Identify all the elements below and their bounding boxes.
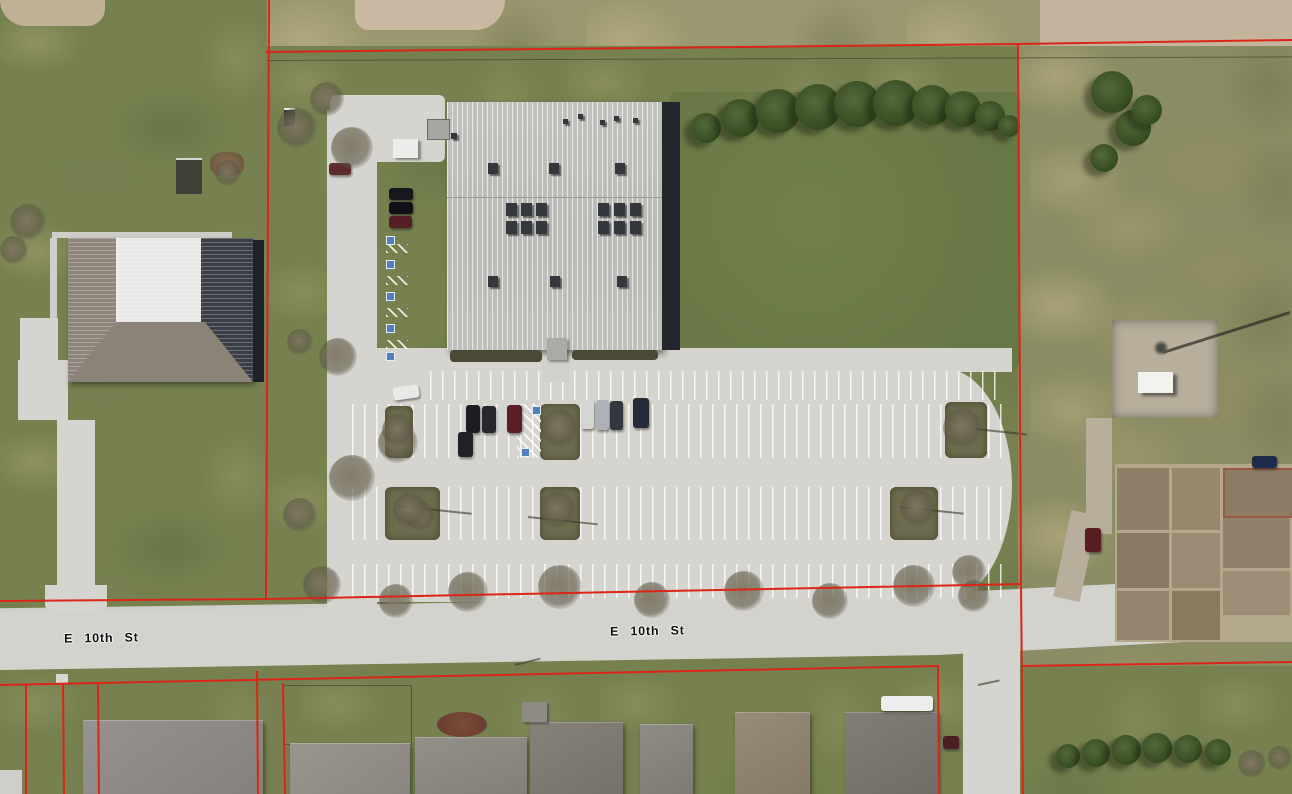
rooftop-unit (506, 203, 517, 216)
evergreen-tree (691, 113, 721, 143)
scrub-diagonal-right (1030, 140, 1292, 470)
rooftop-unit (488, 163, 498, 174)
car (581, 400, 594, 429)
camper-rv (881, 696, 933, 711)
rooftop-unit (550, 276, 560, 287)
left-building-walk (50, 238, 57, 324)
bare-tree (1268, 746, 1292, 770)
building-lawn (668, 92, 1020, 370)
house-roof (530, 722, 623, 794)
car (389, 188, 413, 200)
rooftop-unit (598, 203, 609, 216)
rooftop-unit (614, 221, 625, 234)
evergreen-tree (1132, 95, 1162, 125)
garden-plot (1117, 591, 1169, 640)
bare-tree (943, 408, 983, 448)
car (458, 432, 473, 457)
evergreen-tree (1142, 733, 1172, 763)
residential-driveway (963, 642, 1020, 794)
stall-row-b (352, 404, 1004, 458)
bare-tree (331, 127, 373, 169)
main-building-roof-seam (447, 197, 662, 198)
left-building-pad (20, 318, 58, 364)
accessible-parking-symbol (521, 448, 530, 457)
accessible-parking-symbol (532, 406, 541, 415)
backyard-fence (283, 685, 412, 745)
left-building-pad (18, 360, 68, 420)
house-roof (290, 743, 410, 794)
car (466, 405, 480, 433)
dumpster-enclosure (427, 119, 450, 140)
car (943, 736, 959, 749)
bare-tree (283, 498, 317, 532)
bare-tree (952, 555, 986, 589)
car (482, 406, 496, 433)
rooftop-unit (488, 276, 498, 287)
roof-vent (563, 119, 568, 124)
rooftop-unit (536, 203, 547, 216)
mulch-landscape-circle (437, 712, 487, 737)
evergreen-tree (1111, 735, 1141, 765)
accessible-parking-symbol (386, 260, 395, 269)
accessible-parking-symbol (386, 324, 395, 333)
car (633, 398, 649, 428)
bare-tree (277, 108, 317, 148)
dirt-patch-top-middle (355, 0, 505, 30)
bare-tree (900, 490, 936, 526)
left-building-drive-apron (45, 585, 107, 612)
house-roof (640, 724, 693, 794)
street-label-e-10th-st-east: E 10th St (610, 623, 685, 638)
bare-tree (393, 493, 427, 527)
car (389, 202, 413, 214)
bare-tree (379, 584, 413, 618)
shed (176, 158, 202, 194)
house-roof (735, 712, 810, 794)
bare-tree (724, 571, 764, 611)
evergreen-tree (1205, 739, 1231, 765)
car (1085, 528, 1101, 552)
roof-vent (633, 118, 638, 123)
evergreen-tree (721, 99, 759, 137)
roof-vent (578, 114, 583, 119)
rooftop-unit (598, 221, 609, 234)
bare-tree (0, 236, 28, 264)
car (610, 401, 623, 430)
evergreen-tree (756, 89, 800, 133)
dirt-patch-top-left (0, 0, 105, 26)
bare-tree (10, 204, 46, 240)
bare-tree (634, 582, 670, 618)
garden-plot (1223, 518, 1290, 568)
equipment-shed (1138, 372, 1173, 393)
bare-tree (303, 566, 341, 604)
roof-vent (451, 133, 457, 139)
driveway-pad (0, 770, 22, 794)
main-building-east-shadow (662, 102, 680, 350)
bare-tree (448, 572, 488, 612)
mailbox-pad (56, 674, 68, 684)
garden-plot (1223, 571, 1290, 615)
rooftop-unit (615, 163, 625, 174)
bare-tree (541, 409, 579, 447)
evergreen-tree (1056, 744, 1080, 768)
house-roof (83, 720, 263, 794)
car (1252, 456, 1277, 468)
rooftop-unit (614, 203, 625, 216)
evergreen-tree (1082, 739, 1110, 767)
bare-tree (1238, 750, 1266, 778)
rooftop-unit (521, 203, 532, 216)
rooftop-unit (549, 163, 559, 174)
bare-tree (540, 492, 576, 528)
garden-plot (1172, 591, 1220, 640)
evergreen-tree (1090, 144, 1118, 172)
rooftop-unit (630, 221, 641, 234)
bare-tree (538, 565, 582, 609)
garden-plot (1117, 533, 1169, 588)
street-label-e-10th-st-west: E 10th St (64, 630, 139, 645)
bare-tree (812, 583, 848, 619)
car (389, 216, 412, 228)
left-building-east-shadow (253, 240, 264, 382)
car (507, 405, 522, 433)
house-roof (415, 737, 527, 794)
left-building-driveway (57, 420, 95, 612)
rooftop-unit (617, 276, 627, 287)
bare-tree (287, 329, 313, 355)
garden-plot (1172, 533, 1220, 588)
garden-plot-fenced (1223, 468, 1292, 518)
garden-plot (1172, 468, 1220, 530)
landscape-bed (450, 350, 542, 362)
evergreen-tree (1174, 735, 1202, 763)
crosshatch-marking (386, 308, 408, 317)
rooftop-unit (506, 221, 517, 234)
stall-row-a (430, 371, 1000, 400)
accessible-parking-symbol (386, 352, 395, 361)
aerial-map-canvas[interactable]: E 10th St E 10th St (0, 0, 1292, 794)
accessible-parking-symbol (386, 236, 395, 245)
crosshatch-marking (386, 276, 408, 285)
bare-tree (215, 160, 241, 186)
garden-plot (1117, 468, 1169, 530)
house-roof (845, 712, 938, 794)
rooftop-unit (536, 221, 547, 234)
bare-tree (893, 565, 935, 607)
garden-shed (522, 702, 547, 722)
evergreen-tree (1091, 71, 1133, 113)
white-canopy-structure (393, 139, 418, 158)
roof-vent (600, 120, 605, 125)
dirt-field-top-right (1040, 0, 1292, 46)
roof-vent (614, 116, 619, 121)
landscape-bed (572, 350, 658, 360)
crosshatch-marking (386, 340, 408, 349)
bare-tree (310, 82, 344, 116)
tower-base (1153, 340, 1169, 356)
crosshatch-marking (386, 244, 408, 253)
entrance-canopy (547, 338, 567, 360)
rooftop-unit (521, 221, 532, 234)
bare-tree (329, 455, 375, 501)
accessible-parking-symbol (386, 292, 395, 301)
bare-tree (319, 338, 357, 376)
evergreen-tree (998, 115, 1020, 137)
car (596, 400, 609, 430)
bare-tree (382, 414, 414, 446)
tower-gravel-pad (1112, 320, 1218, 418)
rooftop-unit (630, 203, 641, 216)
